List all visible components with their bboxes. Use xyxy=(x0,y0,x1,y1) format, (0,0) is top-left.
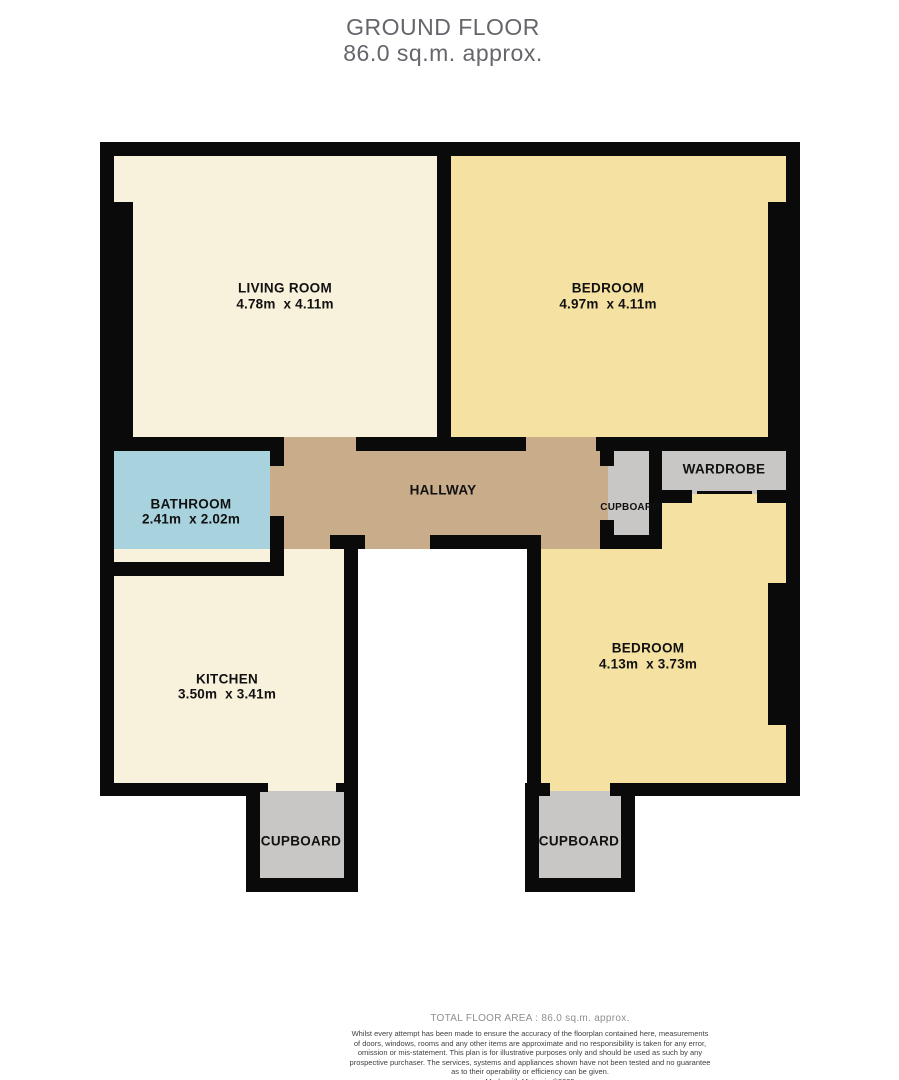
room-label-bathroom: BATHROOM xyxy=(151,497,232,511)
room-label-cupboard-bedroom: CUPBOARD xyxy=(539,834,619,848)
wall-segment xyxy=(114,202,133,437)
wall-segment xyxy=(100,142,114,796)
wall-segment xyxy=(596,437,786,451)
wall-segment xyxy=(525,878,635,892)
room-dims-living-room: 4.78m x 4.11m xyxy=(236,297,333,311)
room-label-living-room: LIVING ROOM xyxy=(238,281,332,295)
wall-segment xyxy=(246,783,260,892)
wall-segment xyxy=(430,535,541,549)
wall-segment xyxy=(114,562,284,576)
room-label-wardrobe: WARDROBE xyxy=(683,462,766,476)
room-label-cupboard-hall: CUPBOARD xyxy=(600,503,659,513)
wall-segment xyxy=(525,783,539,892)
wall-segment xyxy=(768,202,786,437)
wall-segment xyxy=(336,783,344,792)
wall-segment xyxy=(356,437,526,451)
wall-segment xyxy=(114,437,284,451)
wall-segment xyxy=(330,535,365,549)
floorplan-footer: TOTAL FLOOR AREA : 86.0 sq.m. approx. Wh… xyxy=(349,1013,711,1080)
wall-segment xyxy=(768,583,786,725)
wall-segment xyxy=(246,878,358,892)
total-floor-area: TOTAL FLOOR AREA : 86.0 sq.m. approx. xyxy=(349,1013,711,1024)
wall-segment xyxy=(649,437,662,549)
room-label-bedroom-bottom: BEDROOM xyxy=(612,641,685,655)
wall-segment xyxy=(600,437,614,466)
wall-segment xyxy=(610,783,786,796)
room-dims-bedroom-top: 4.97m x 4.11m xyxy=(559,297,656,311)
room-label-cupboard-kitchen: CUPBOARD xyxy=(261,834,341,848)
wall-segment xyxy=(662,490,692,503)
room-floor-bedroom-bottom xyxy=(541,549,786,796)
wall-segment xyxy=(786,142,800,796)
wall-segment xyxy=(260,783,268,792)
disclaimer-text: Whilst every attempt has been made to en… xyxy=(349,1029,711,1077)
room-dims-bedroom-bottom: 4.13m x 3.73m xyxy=(599,657,697,671)
room-label-bedroom-top: BEDROOM xyxy=(572,281,645,295)
room-dims-bathroom: 2.41m x 2.02m xyxy=(142,512,240,526)
wall-segment xyxy=(621,783,635,892)
wall-segment xyxy=(100,783,260,796)
floorplan-page: GROUND FLOOR 86.0 sq.m. approx. xyxy=(0,0,899,1080)
wall-segment xyxy=(344,549,358,892)
wardrobe-sliding-door-line xyxy=(697,491,752,494)
floor-plan: LIVING ROOM 4.78m x 4.11m BEDROOM 4.97m … xyxy=(0,0,899,1000)
room-label-kitchen: KITCHEN xyxy=(196,672,258,686)
wall-segment xyxy=(527,535,541,796)
room-label-hallway: HALLWAY xyxy=(410,483,477,497)
room-dims-kitchen: 3.50m x 3.41m xyxy=(178,687,276,701)
wall-segment xyxy=(100,142,800,156)
wall-segment xyxy=(757,490,786,503)
wall-segment xyxy=(437,156,451,437)
wall-segment xyxy=(270,451,284,466)
